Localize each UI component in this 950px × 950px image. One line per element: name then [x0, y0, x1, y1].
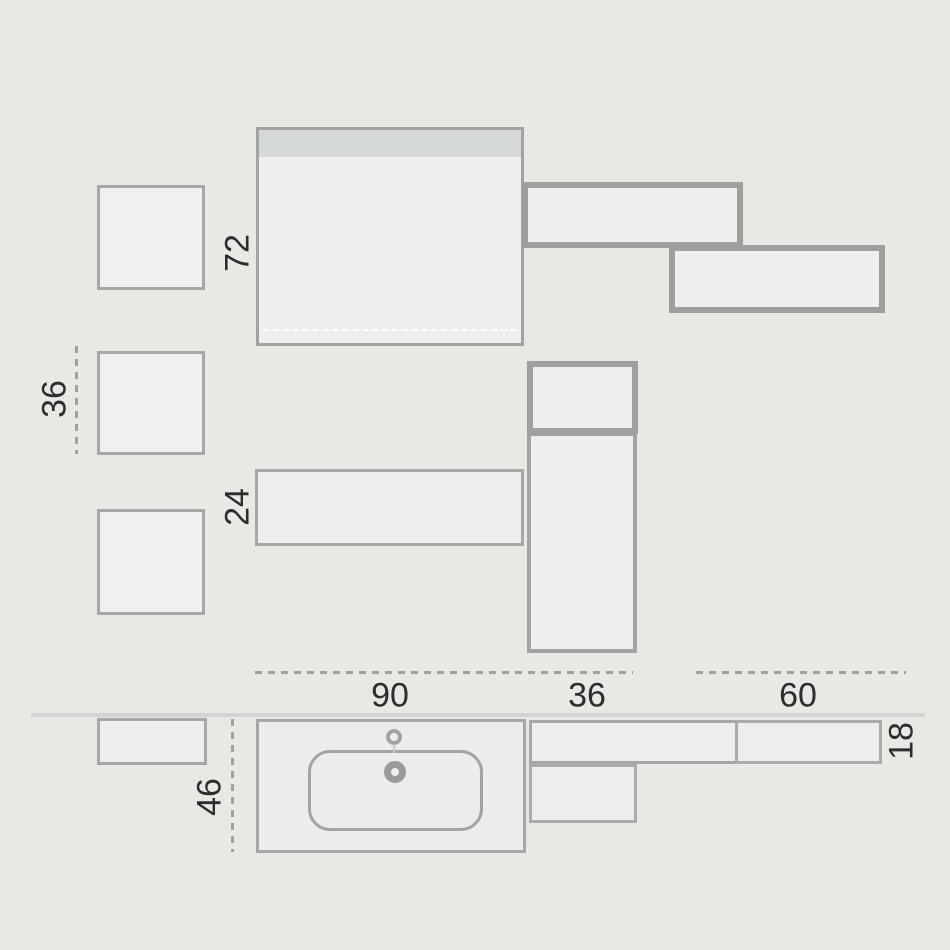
elevation-column-top-door: [527, 361, 638, 434]
dim-label-side-box-36: 36: [36, 380, 75, 418]
faucet-centerline: [393, 744, 395, 753]
dimension-diagram: 36 72 24 90 36 60 46 18: [0, 0, 950, 950]
elevation-wall-cabinet-1: [522, 182, 743, 248]
elevation-low-unit: [255, 469, 524, 546]
elevation-side-box-2: [97, 351, 205, 455]
plan-wall-line: [31, 713, 925, 717]
dimension-line-90-36: [255, 671, 633, 674]
dimension-extension-line-46: [231, 719, 234, 852]
dim-label-depth-46: 46: [191, 778, 230, 816]
drain-hole: [384, 761, 406, 783]
main-unit-top-strip: [259, 130, 521, 157]
plan-vanity-top: [256, 719, 526, 853]
main-unit-bottom-dotted-line: [263, 329, 517, 331]
dim-label-column-36: 36: [568, 677, 606, 716]
faucet-hole: [386, 729, 402, 745]
dim-label-main-unit-72: 72: [219, 234, 258, 272]
plan-wall-cabinet-1: [529, 720, 738, 764]
dim-label-vanity-90: 90: [371, 677, 409, 716]
plan-column: [529, 764, 637, 823]
plan-side-cabinet: [97, 718, 207, 765]
elevation-column-body: [527, 432, 637, 653]
elevation-wall-cabinet-2: [669, 245, 885, 313]
plan-wall-cabinet-2: [735, 720, 882, 764]
dim-label-wall-cabinet-60: 60: [779, 677, 817, 716]
elevation-side-box-3: [97, 509, 205, 615]
dimension-line-60: [696, 671, 906, 674]
elevation-main-unit: [256, 127, 524, 346]
dimension-extension-line-36: [75, 346, 78, 454]
elevation-side-box-1: [97, 185, 205, 290]
dim-label-wall-depth-18: 18: [883, 722, 922, 760]
dim-label-low-unit-24: 24: [219, 488, 258, 526]
